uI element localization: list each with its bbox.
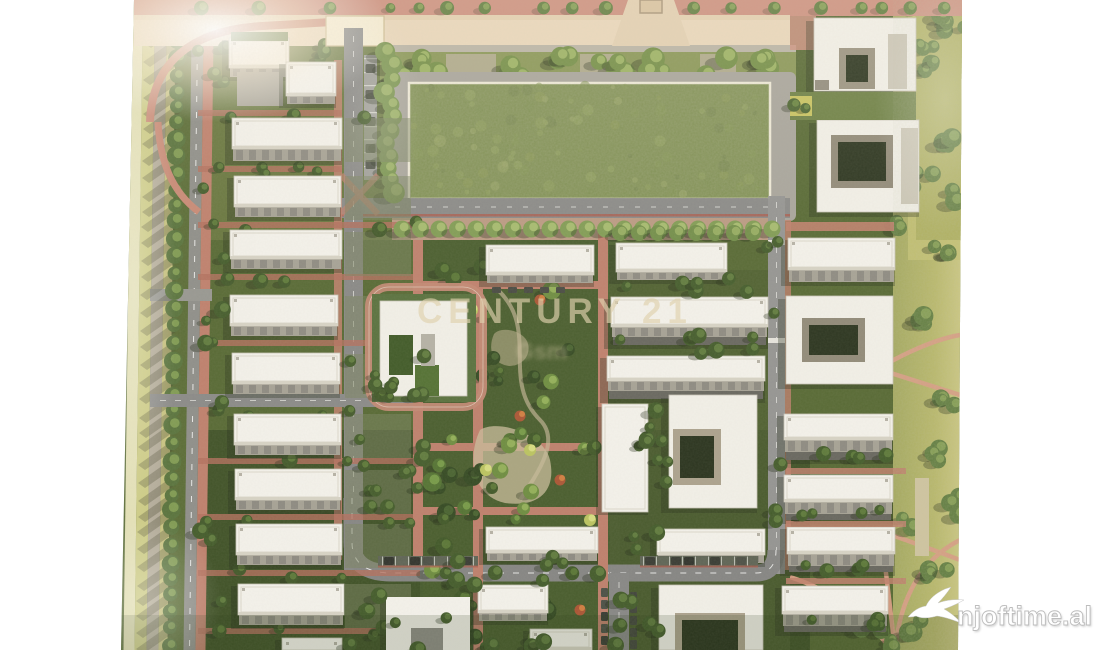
svg-text:Gsm: Gsm	[516, 338, 567, 364]
svg-text:njoftime.al: njoftime.al	[957, 601, 1092, 631]
svg-text:CENTURY 21: CENTURY 21	[417, 292, 693, 331]
